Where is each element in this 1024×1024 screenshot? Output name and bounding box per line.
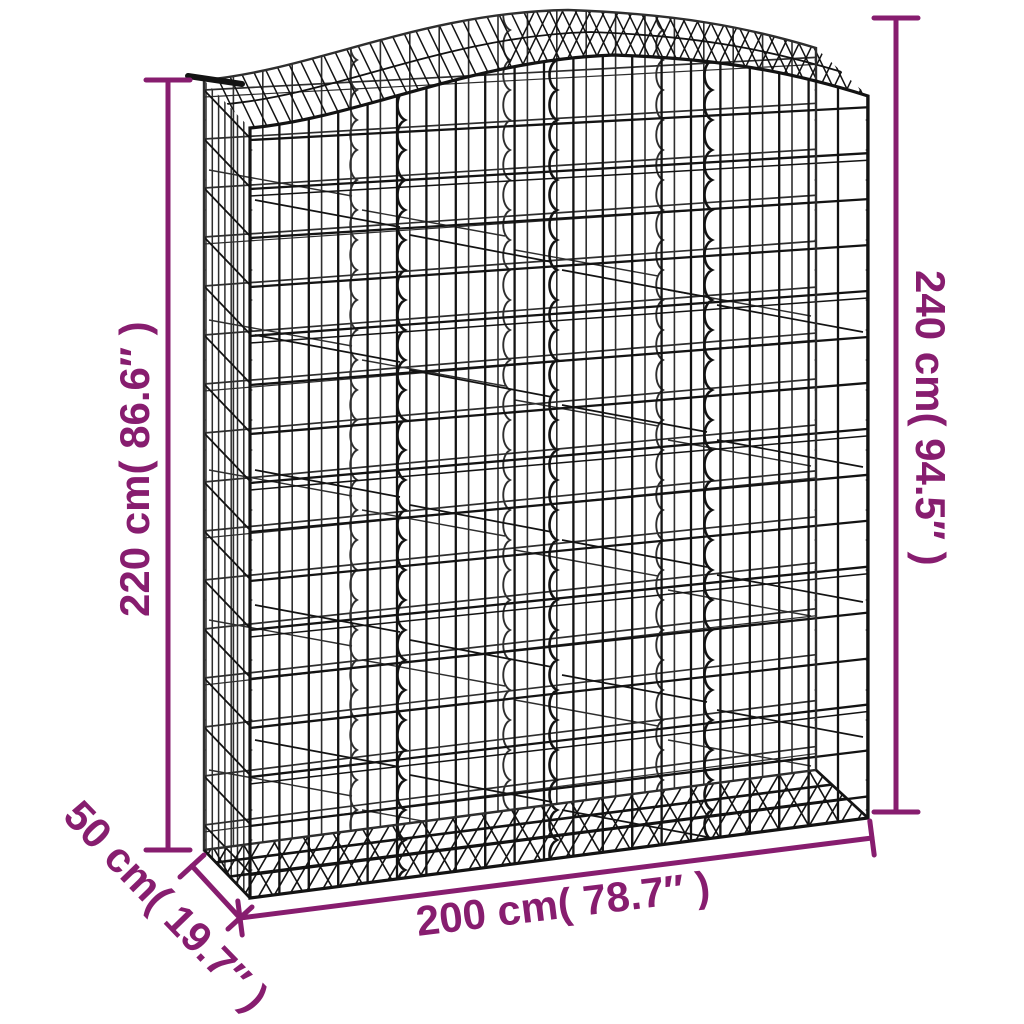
product-dimension-diagram: 220 cm( 86.6″ ) 240 cm( 94.5″ ) 200 cm( … xyxy=(0,0,1024,1024)
height-back-dimension-label: 240 cm( 94.5″ ) xyxy=(908,270,952,564)
width-right-cap xyxy=(870,821,874,855)
height-front-dimension-label: 220 cm( 86.6″ ) xyxy=(113,323,157,617)
back-panel-mesh xyxy=(197,0,823,930)
